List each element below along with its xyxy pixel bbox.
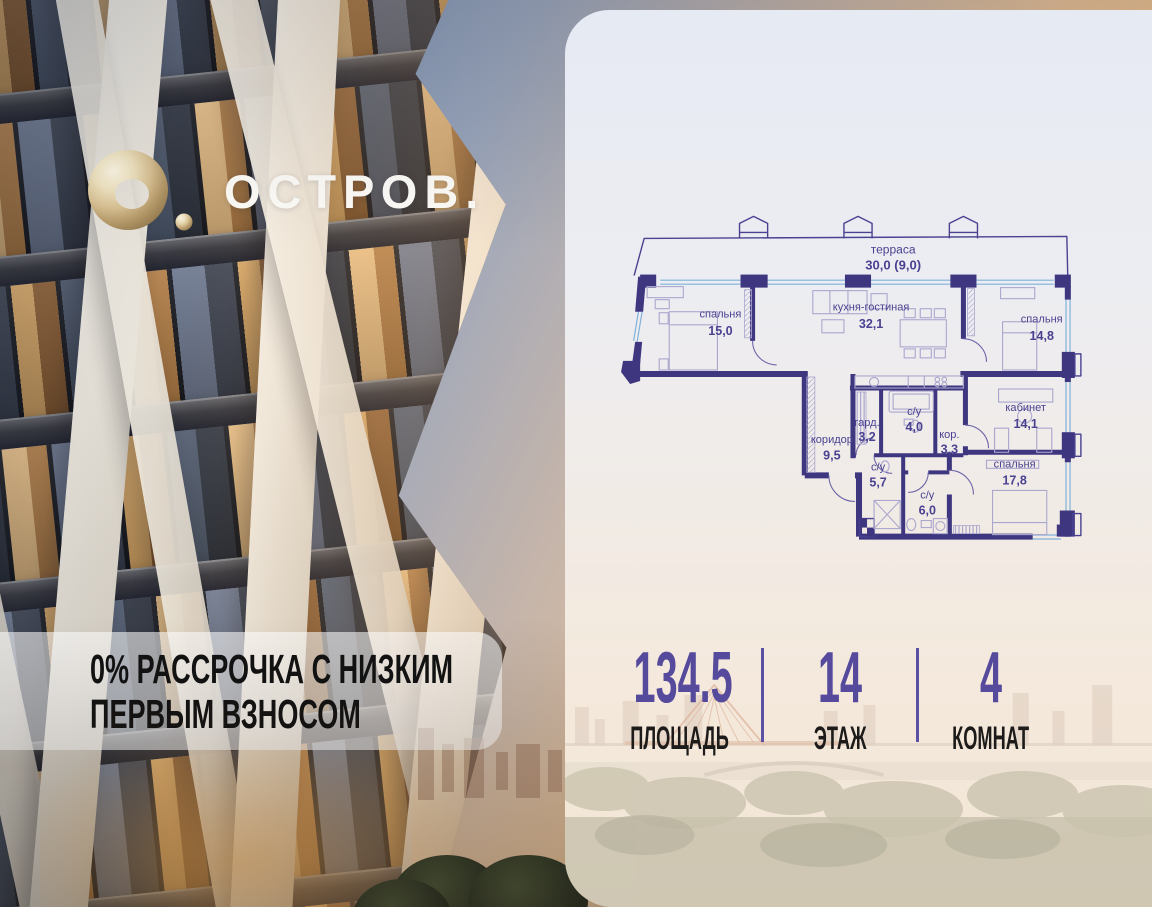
label-hall-small: кор.	[939, 429, 959, 441]
label-wardrobe: гард.	[854, 417, 879, 429]
stat-area-value: 134.5	[634, 644, 733, 712]
stat-area-label: ПЛОЩАДЬ	[630, 722, 729, 754]
offer-banner[interactable]: 0% РАССРОЧКА С НИЗКИМ ПЕРВЫМ ВЗНОСОМ	[0, 632, 502, 750]
floor-plan-drawing: терраса 30,0 (9,0) спальня 15,0 кухня-го…	[607, 213, 1109, 555]
floor-plan: терраса 30,0 (9,0) спальня 15,0 кухня-го…	[607, 213, 1109, 555]
label-bedroom-1-area: 15,0	[708, 324, 732, 338]
stat-floor: 14 ЭТАЖ	[764, 644, 916, 754]
label-bathroom-2-area: 5,7	[869, 475, 886, 489]
label-bathroom-2: с/у	[871, 461, 886, 473]
label-bedroom-1: спальня	[700, 309, 742, 321]
brand-logo: ОСТРОВ.	[86, 148, 485, 234]
stat-rooms: 4 КОМНАТ	[919, 644, 1063, 754]
label-kitchen-living-area: 32,1	[859, 317, 883, 331]
offer-line2: ПЕРВЫМ ВЗНОСОМ	[90, 692, 362, 737]
offer-line1: 0% РАССРОЧКА С НИЗКИМ	[90, 647, 362, 692]
label-corridor: коридор	[811, 434, 853, 446]
real-estate-ad: ОСТРОВ. 0% РАССРОЧКА С НИЗКИМ ПЕРВЫМ ВЗН…	[0, 0, 1152, 907]
terrace-outline	[634, 216, 1068, 279]
stat-floor-value: 14	[818, 644, 862, 712]
label-bedroom-3: спальня	[994, 458, 1036, 470]
stat-floor-label: ЭТАЖ	[814, 722, 867, 754]
stat-area: 134.5 ПЛОЩАДЬ	[593, 644, 761, 754]
label-bathroom-3-area: 6,0	[919, 504, 936, 518]
label-bedroom-3-area: 17,8	[1002, 473, 1026, 487]
label-office: кабинет	[1005, 402, 1046, 414]
label-bathroom-1: с/у	[907, 406, 922, 418]
label-terrace-area: 30,0 (9,0)	[865, 258, 921, 273]
label-office-area: 14,1	[1013, 417, 1037, 431]
label-terrace: терраса	[871, 242, 916, 256]
apartment-stats: 134.5 ПЛОЩАДЬ 14 ЭТАЖ 4 КОМНАТ	[593, 644, 1063, 754]
stat-rooms-label: КОМНАТ	[952, 722, 1029, 754]
brand-name: ОСТРОВ.	[224, 168, 485, 215]
label-hall-small-area: 3,3	[941, 442, 958, 456]
label-wardrobe-area: 3,2	[858, 430, 875, 444]
label-kitchen-living: кухня-гостиная	[833, 302, 910, 314]
offer-text: 0% РАССРОЧКА С НИЗКИМ ПЕРВЫМ ВЗНОСОМ	[0, 632, 502, 737]
apartment-card: терраса 30,0 (9,0) спальня 15,0 кухня-го…	[565, 10, 1152, 907]
label-bedroom-2-area: 14,8	[1030, 329, 1054, 343]
brand-logo-torus-icon	[86, 148, 198, 234]
label-bathroom-3: с/у	[920, 489, 935, 501]
stat-rooms-value: 4	[980, 644, 1002, 712]
label-bedroom-2: спальня	[1021, 314, 1063, 326]
label-bathroom-1-area: 4,0	[906, 420, 923, 434]
label-corridor-area: 9,5	[823, 448, 840, 462]
